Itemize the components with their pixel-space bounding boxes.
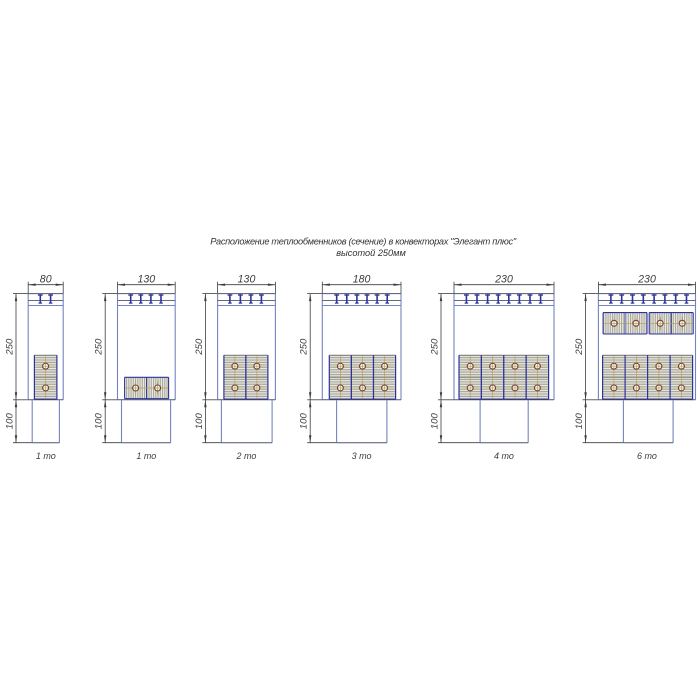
svg-text:6 то: 6 то: [637, 451, 657, 461]
svg-text:130: 130: [137, 274, 155, 286]
svg-text:250: 250: [430, 338, 441, 356]
svg-text:230: 230: [637, 274, 656, 286]
svg-text:100: 100: [194, 413, 205, 430]
svg-text:2 то: 2 то: [236, 451, 257, 461]
svg-text:1 то: 1 то: [36, 451, 56, 461]
svg-text:100: 100: [430, 413, 441, 430]
svg-text:1 то: 1 то: [136, 451, 156, 461]
svg-text:100: 100: [299, 413, 310, 430]
svg-text:130: 130: [238, 274, 256, 286]
svg-text:Расположение теплообменников (: Расположение теплообменников (сечение) в…: [210, 236, 517, 246]
svg-text:250: 250: [94, 338, 105, 356]
svg-text:80: 80: [40, 274, 52, 286]
svg-text:250: 250: [299, 338, 310, 356]
svg-text:100: 100: [574, 413, 585, 430]
svg-text:100: 100: [94, 413, 105, 430]
svg-text:100: 100: [5, 413, 16, 430]
svg-text:180: 180: [353, 274, 371, 286]
svg-text:250: 250: [194, 338, 205, 356]
svg-text:3 то: 3 то: [352, 451, 372, 461]
svg-text:250: 250: [574, 338, 585, 356]
svg-text:4 то: 4 то: [494, 451, 514, 461]
svg-text:250: 250: [5, 338, 16, 356]
svg-text:высотой 250мм: высотой 250мм: [336, 248, 406, 258]
svg-text:230: 230: [494, 274, 513, 286]
